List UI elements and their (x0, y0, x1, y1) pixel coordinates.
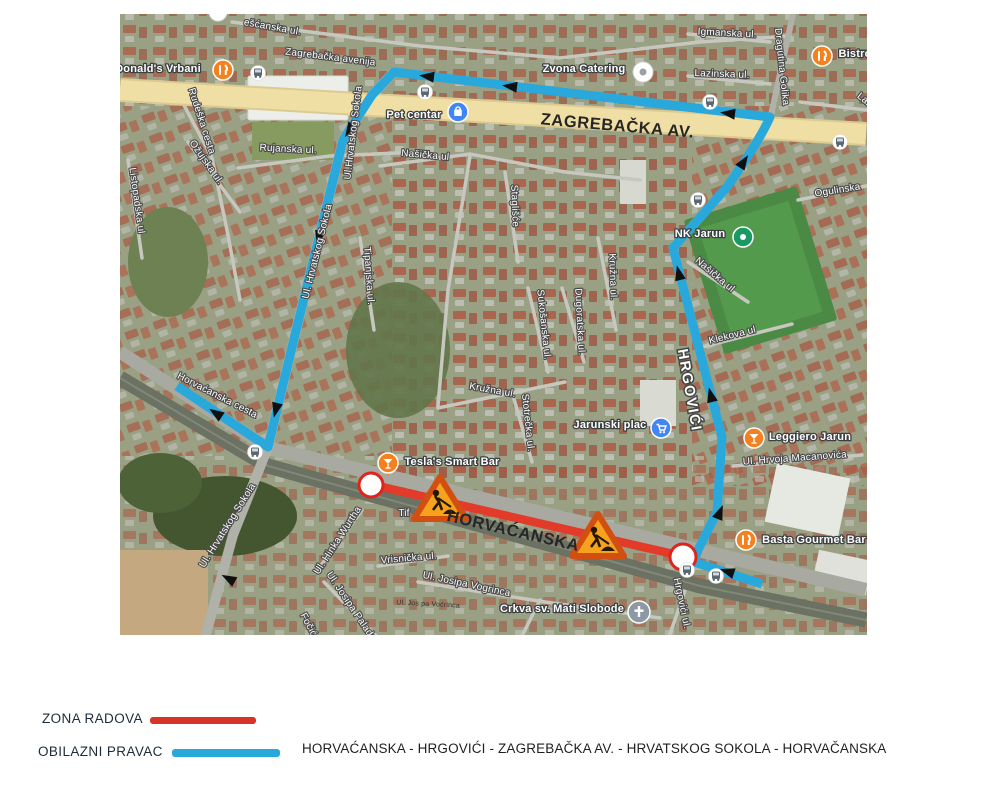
poi-label-tesla: Tesla's Smart Bar (404, 456, 500, 468)
work-zone-legend-label: ZONA RADOVA (42, 711, 143, 726)
poi-label-leggiero: Leggiero Jarun (769, 431, 851, 443)
poi-label-zvona: Zvona Catering (543, 63, 626, 75)
bus-stop-icon (703, 95, 718, 110)
bus-stop-icon (709, 569, 724, 584)
detour-swatch (172, 749, 280, 757)
detour-legend-label: OBILAZNI PRAVAC (38, 744, 163, 759)
poi-label-mcdonalds: Donald's Vrbani (120, 63, 201, 75)
roadworks-notice: ešćanska ul. Zagrebačka avenija Igmanska… (0, 0, 987, 787)
street-label: Kružna ul. (606, 253, 619, 300)
detour-route-description: HORVAĆANSKA - HRGOVIĆI - ZAGREBAČKA AV. … (302, 741, 886, 756)
bus-stop-icon (251, 66, 266, 81)
stadium-icon (733, 227, 753, 247)
poi-label-bistro: Bistro (839, 48, 867, 60)
street-label: Tif (398, 508, 409, 519)
tram-stop-icon (248, 445, 263, 460)
map-canvas: ešćanska ul. Zagrebačka avenija Igmanska… (120, 14, 867, 635)
bus-stop-icon (691, 193, 706, 208)
bus-stop-icon (833, 135, 848, 150)
work-zone-swatch (150, 717, 256, 724)
bus-stop-icon (680, 563, 695, 578)
shopping-icon (448, 102, 468, 122)
cart-icon (651, 418, 671, 438)
dot-icon (633, 62, 653, 82)
poi-label-nk-jarun: NK Jarun (675, 228, 726, 240)
work-zone-endpoint-west (359, 473, 383, 497)
poi-label-jarunski-plac: Jarunski plac (574, 419, 647, 431)
poi-label-crkva: Crkva sv. Mati Slobode (500, 603, 624, 615)
poi-label-basta: Basta Gourmet Bar (762, 534, 866, 546)
bus-stop-icon (418, 85, 433, 100)
poi-label-pet-centar: Pet centar (386, 109, 442, 121)
street-label: Staglišće (508, 185, 520, 228)
street-label: Lazinska ul. (694, 68, 750, 81)
